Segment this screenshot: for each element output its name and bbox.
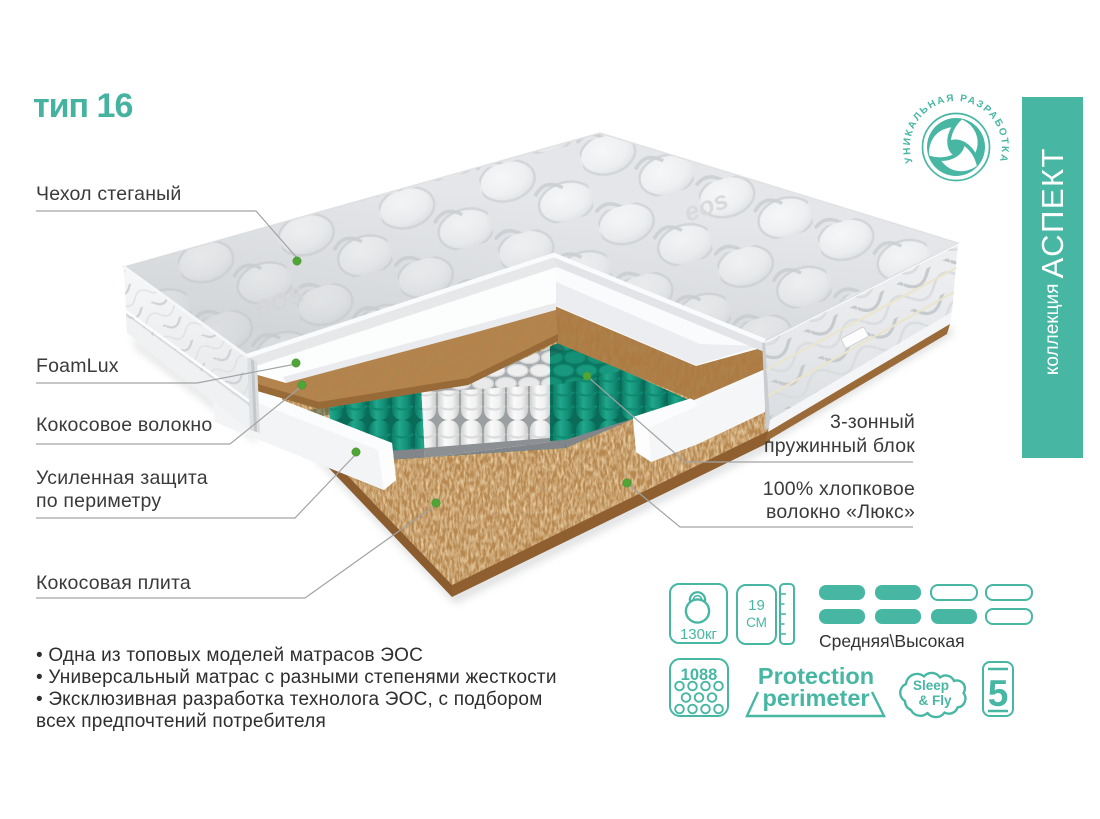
svg-text:Sleep: Sleep [913,678,949,693]
svg-text:& Fly: & Fly [918,693,951,708]
svg-text:19: 19 [748,597,765,614]
svg-text:130кг: 130кг [680,626,718,643]
svg-text:СМ: СМ [746,615,767,630]
svg-text:perimeter: perimeter [762,685,869,711]
svg-text:Средняя\Высокая: Средняя\Высокая [819,631,965,651]
svg-text:5: 5 [988,673,1009,714]
svg-text:1088: 1088 [681,666,718,684]
